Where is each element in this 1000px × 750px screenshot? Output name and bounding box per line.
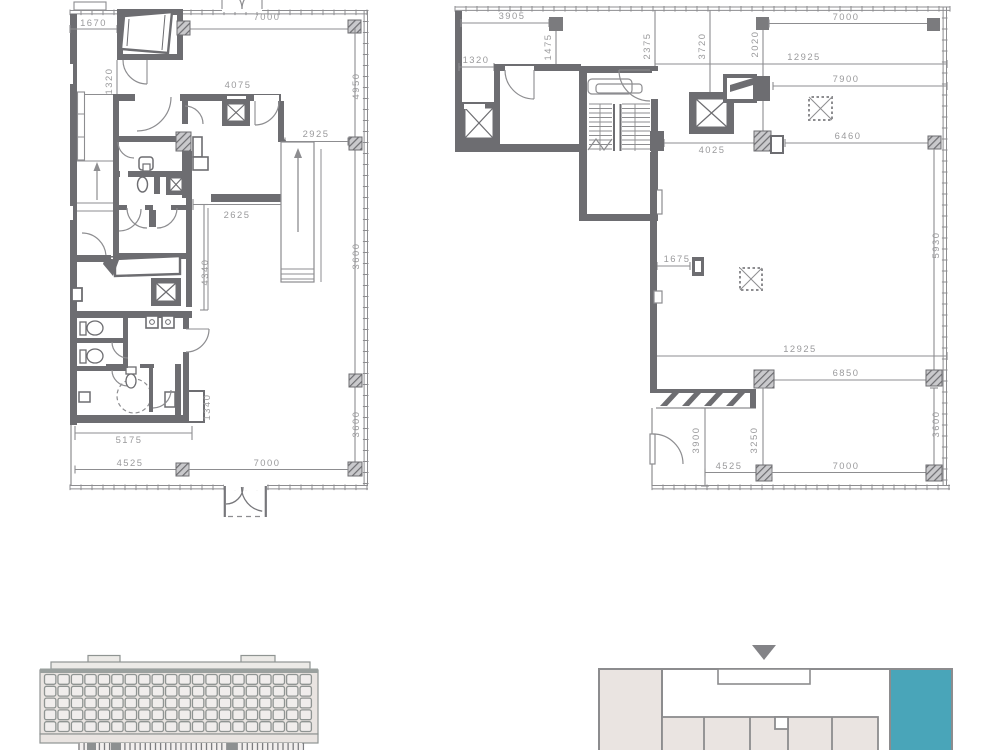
svg-text:5175: 5175 [116,434,143,445]
svg-text:1475: 1475 [542,34,553,61]
svg-text:2020: 2020 [749,31,760,58]
svg-text:12925: 12925 [783,343,817,354]
svg-text:3900: 3900 [690,427,701,454]
svg-text:2925: 2925 [303,128,330,139]
svg-text:3905: 3905 [499,10,526,21]
svg-text:1340: 1340 [201,394,212,421]
svg-text:4025: 4025 [699,144,726,155]
svg-text:3600: 3600 [930,411,941,438]
svg-text:3250: 3250 [748,427,759,454]
svg-text:12925: 12925 [787,51,821,62]
svg-text:2375: 2375 [641,33,652,60]
svg-text:7000: 7000 [254,457,281,468]
svg-text:4950: 4950 [350,73,361,100]
svg-text:3600: 3600 [350,411,361,438]
svg-text:3720: 3720 [696,33,707,60]
svg-text:5930: 5930 [930,232,941,259]
svg-text:7000: 7000 [833,460,860,471]
svg-text:2625: 2625 [224,209,251,220]
svg-text:7000: 7000 [254,11,281,22]
svg-text:7000: 7000 [833,11,860,22]
svg-text:7900: 7900 [833,73,860,84]
svg-text:1675: 1675 [664,253,691,264]
svg-text:3600: 3600 [350,243,361,270]
svg-text:6460: 6460 [835,130,862,141]
svg-text:4525: 4525 [117,457,144,468]
svg-text:4525: 4525 [716,460,743,471]
svg-text:4075: 4075 [225,79,252,90]
svg-text:1320: 1320 [103,68,114,95]
svg-text:6850: 6850 [833,367,860,378]
svg-text:1320: 1320 [463,54,490,65]
svg-text:1670: 1670 [80,17,107,28]
